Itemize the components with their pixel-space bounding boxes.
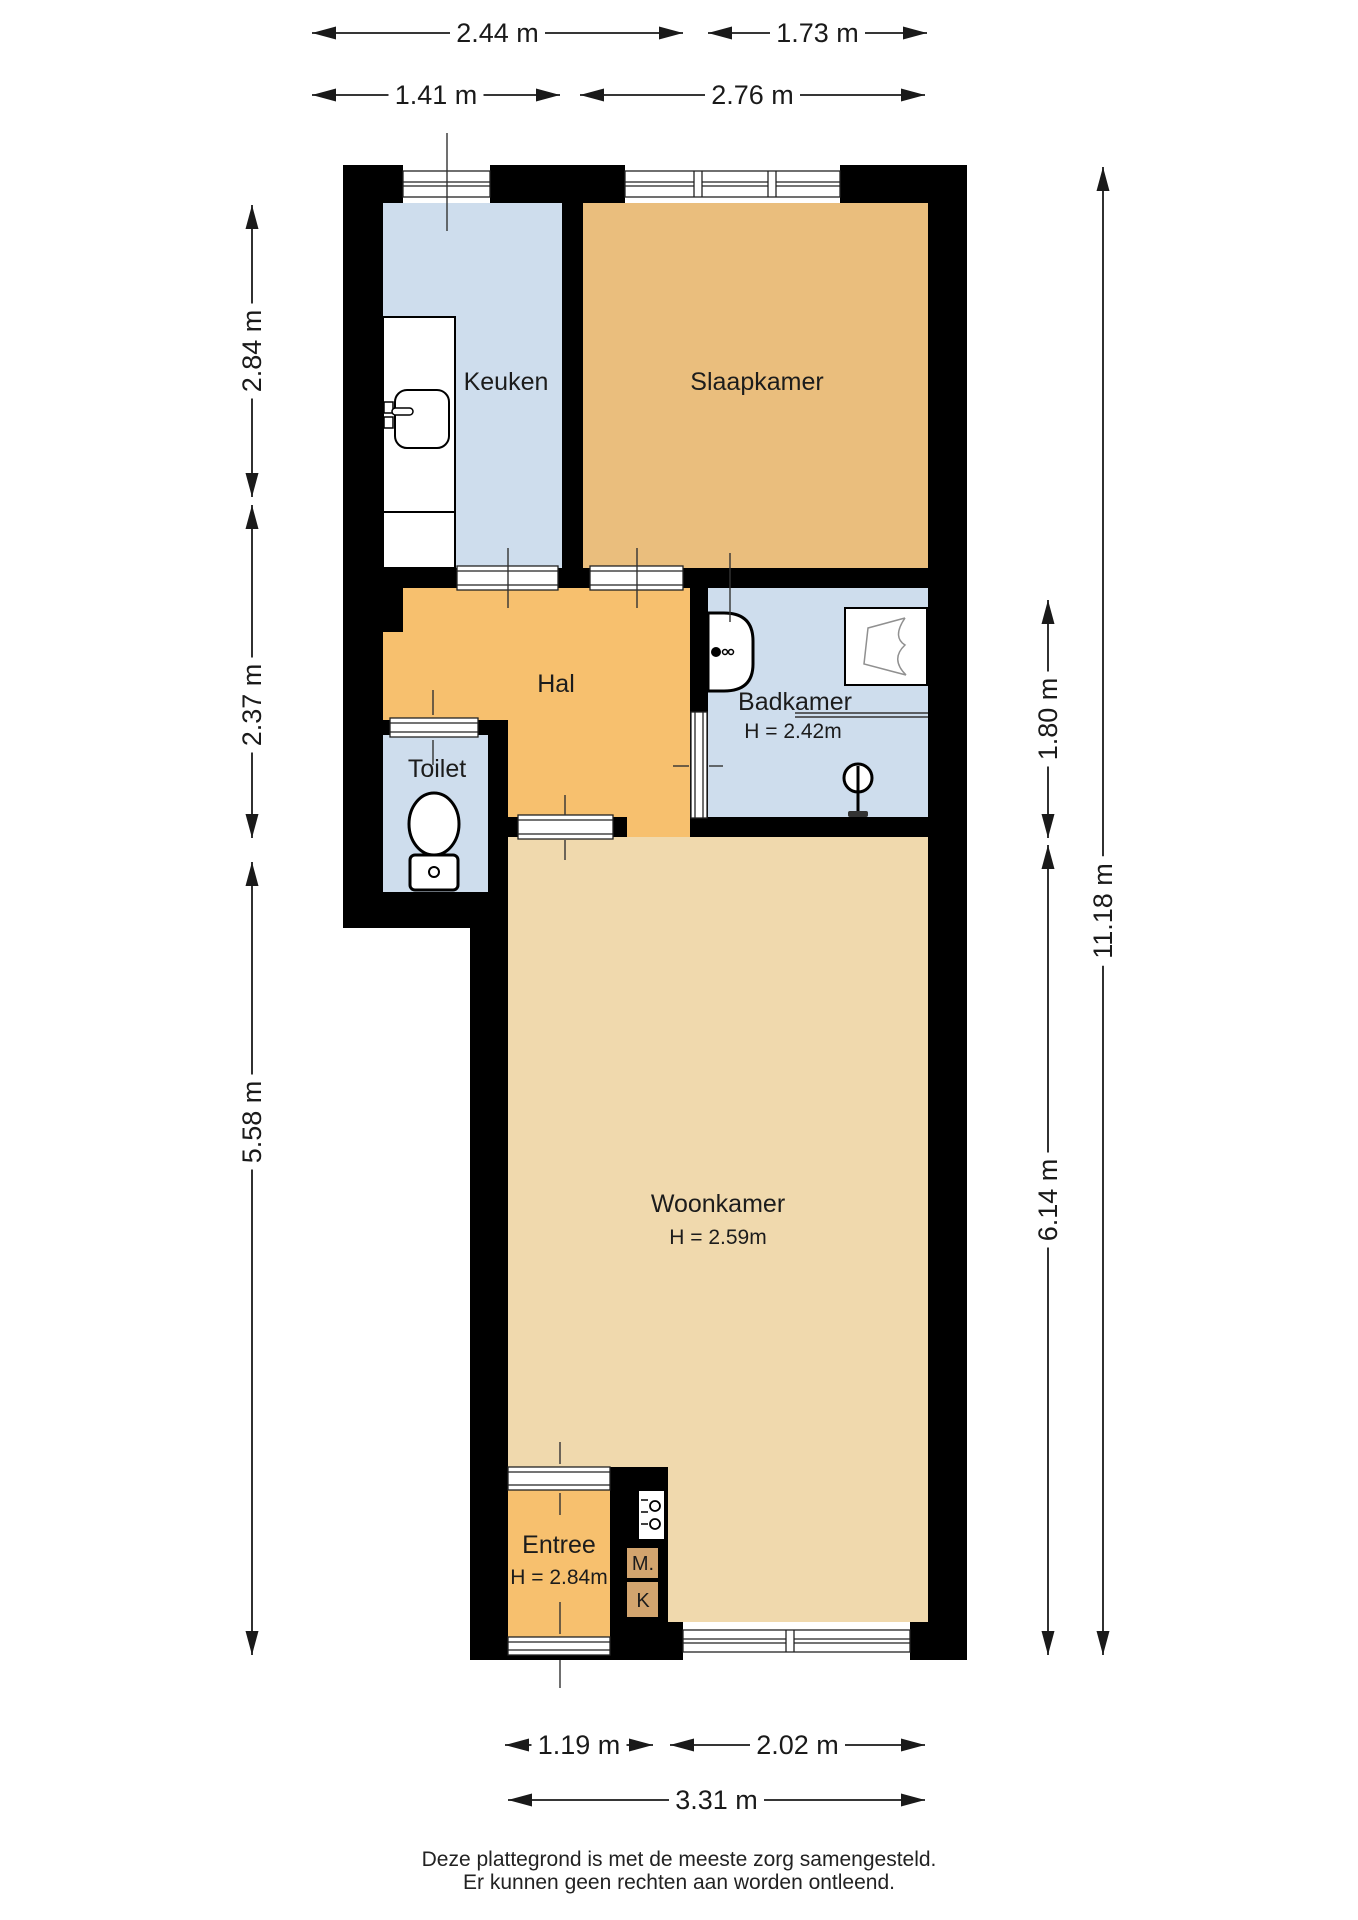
floorplan-canvas: Keuken Slaapkamer Hal Toilet Badkamer H … (0, 0, 1358, 1920)
dimension-bottom-2: 3.31 m (508, 1785, 925, 1815)
entree-label: Entree (522, 1531, 596, 1559)
dimension-top-1: 1.73 m (708, 18, 927, 48)
dimension-left-1: 2.37 m (237, 505, 267, 838)
dimension-label: 11.18 m (1088, 863, 1118, 959)
dimension-label: 2.37 m (237, 664, 267, 747)
slaapkamer-label: Slaapkamer (690, 368, 823, 396)
front-door (508, 1637, 610, 1655)
badkamer-height-label: H = 2.42m (744, 720, 841, 743)
dimension-bottom-1: 2.02 m (670, 1730, 925, 1760)
toilet-icon (409, 793, 459, 890)
dimension-right-2: 11.18 m (1088, 167, 1118, 1655)
entree-height-label: H = 2.84m (510, 1566, 607, 1589)
room-entree-fill (508, 1490, 610, 1637)
dimension-label: 1.19 m (538, 1730, 621, 1760)
dimension-right-0: 1.80 m (1033, 600, 1063, 838)
woonkamer-window (683, 1622, 910, 1660)
dimension-top-3: 2.76 m (580, 80, 925, 110)
slaapkamer-window (625, 165, 840, 203)
door-toilet (390, 718, 478, 737)
dimension-label: 1.41 m (395, 80, 478, 110)
woonkamer-height-label: H = 2.59m (669, 1226, 766, 1249)
dimension-label: 5.58 m (237, 1081, 267, 1164)
kast-label: K (636, 1590, 650, 1612)
dimension-label: 2.84 m (237, 310, 267, 393)
washbasin-icon (708, 613, 753, 691)
dimension-label: 3.31 m (675, 1785, 758, 1815)
badkamer-label: Badkamer (738, 688, 852, 716)
dimension-label: 1.73 m (776, 18, 859, 48)
toilet-label: Toilet (408, 755, 466, 783)
dimension-bottom-0: 1.19 m (505, 1730, 653, 1760)
dimension-label: 2.02 m (756, 1730, 839, 1760)
meterkast-label: M. (632, 1553, 654, 1575)
door-badkamer (691, 712, 707, 818)
dimension-right-1: 6.14 m (1033, 845, 1063, 1655)
keuken-label: Keuken (464, 368, 549, 396)
dimension-label: 1.80 m (1033, 678, 1063, 761)
dimension-top-2: 1.41 m (312, 80, 560, 110)
dimension-label: 6.14 m (1033, 1159, 1063, 1242)
meter-cabinet-icon (638, 1490, 665, 1540)
dimension-label: 2.76 m (711, 80, 794, 110)
hal-woonkamer-opening (627, 817, 690, 837)
woonkamer-label: Woonkamer (651, 1190, 785, 1218)
footer-line2: Er kunnen geen rechten aan worden ontlee… (463, 1871, 895, 1894)
footer: Deze plattegrond is met de meeste zorg s… (422, 1848, 937, 1894)
dimension-left-0: 2.84 m (237, 205, 267, 497)
door-woonkamer-entree (508, 1467, 610, 1490)
footer-line1: Deze plattegrond is met de meeste zorg s… (422, 1848, 937, 1871)
dimension-top-0: 2.44 m (312, 18, 683, 48)
floorplan-page: Keuken Slaapkamer Hal Toilet Badkamer H … (0, 0, 1358, 1920)
shower-icon (845, 608, 927, 685)
hal-label: Hal (537, 670, 575, 698)
door-hal-woonkamer (518, 815, 613, 839)
dimension-left-2: 5.58 m (237, 862, 267, 1655)
dimension-label: 2.44 m (456, 18, 539, 48)
